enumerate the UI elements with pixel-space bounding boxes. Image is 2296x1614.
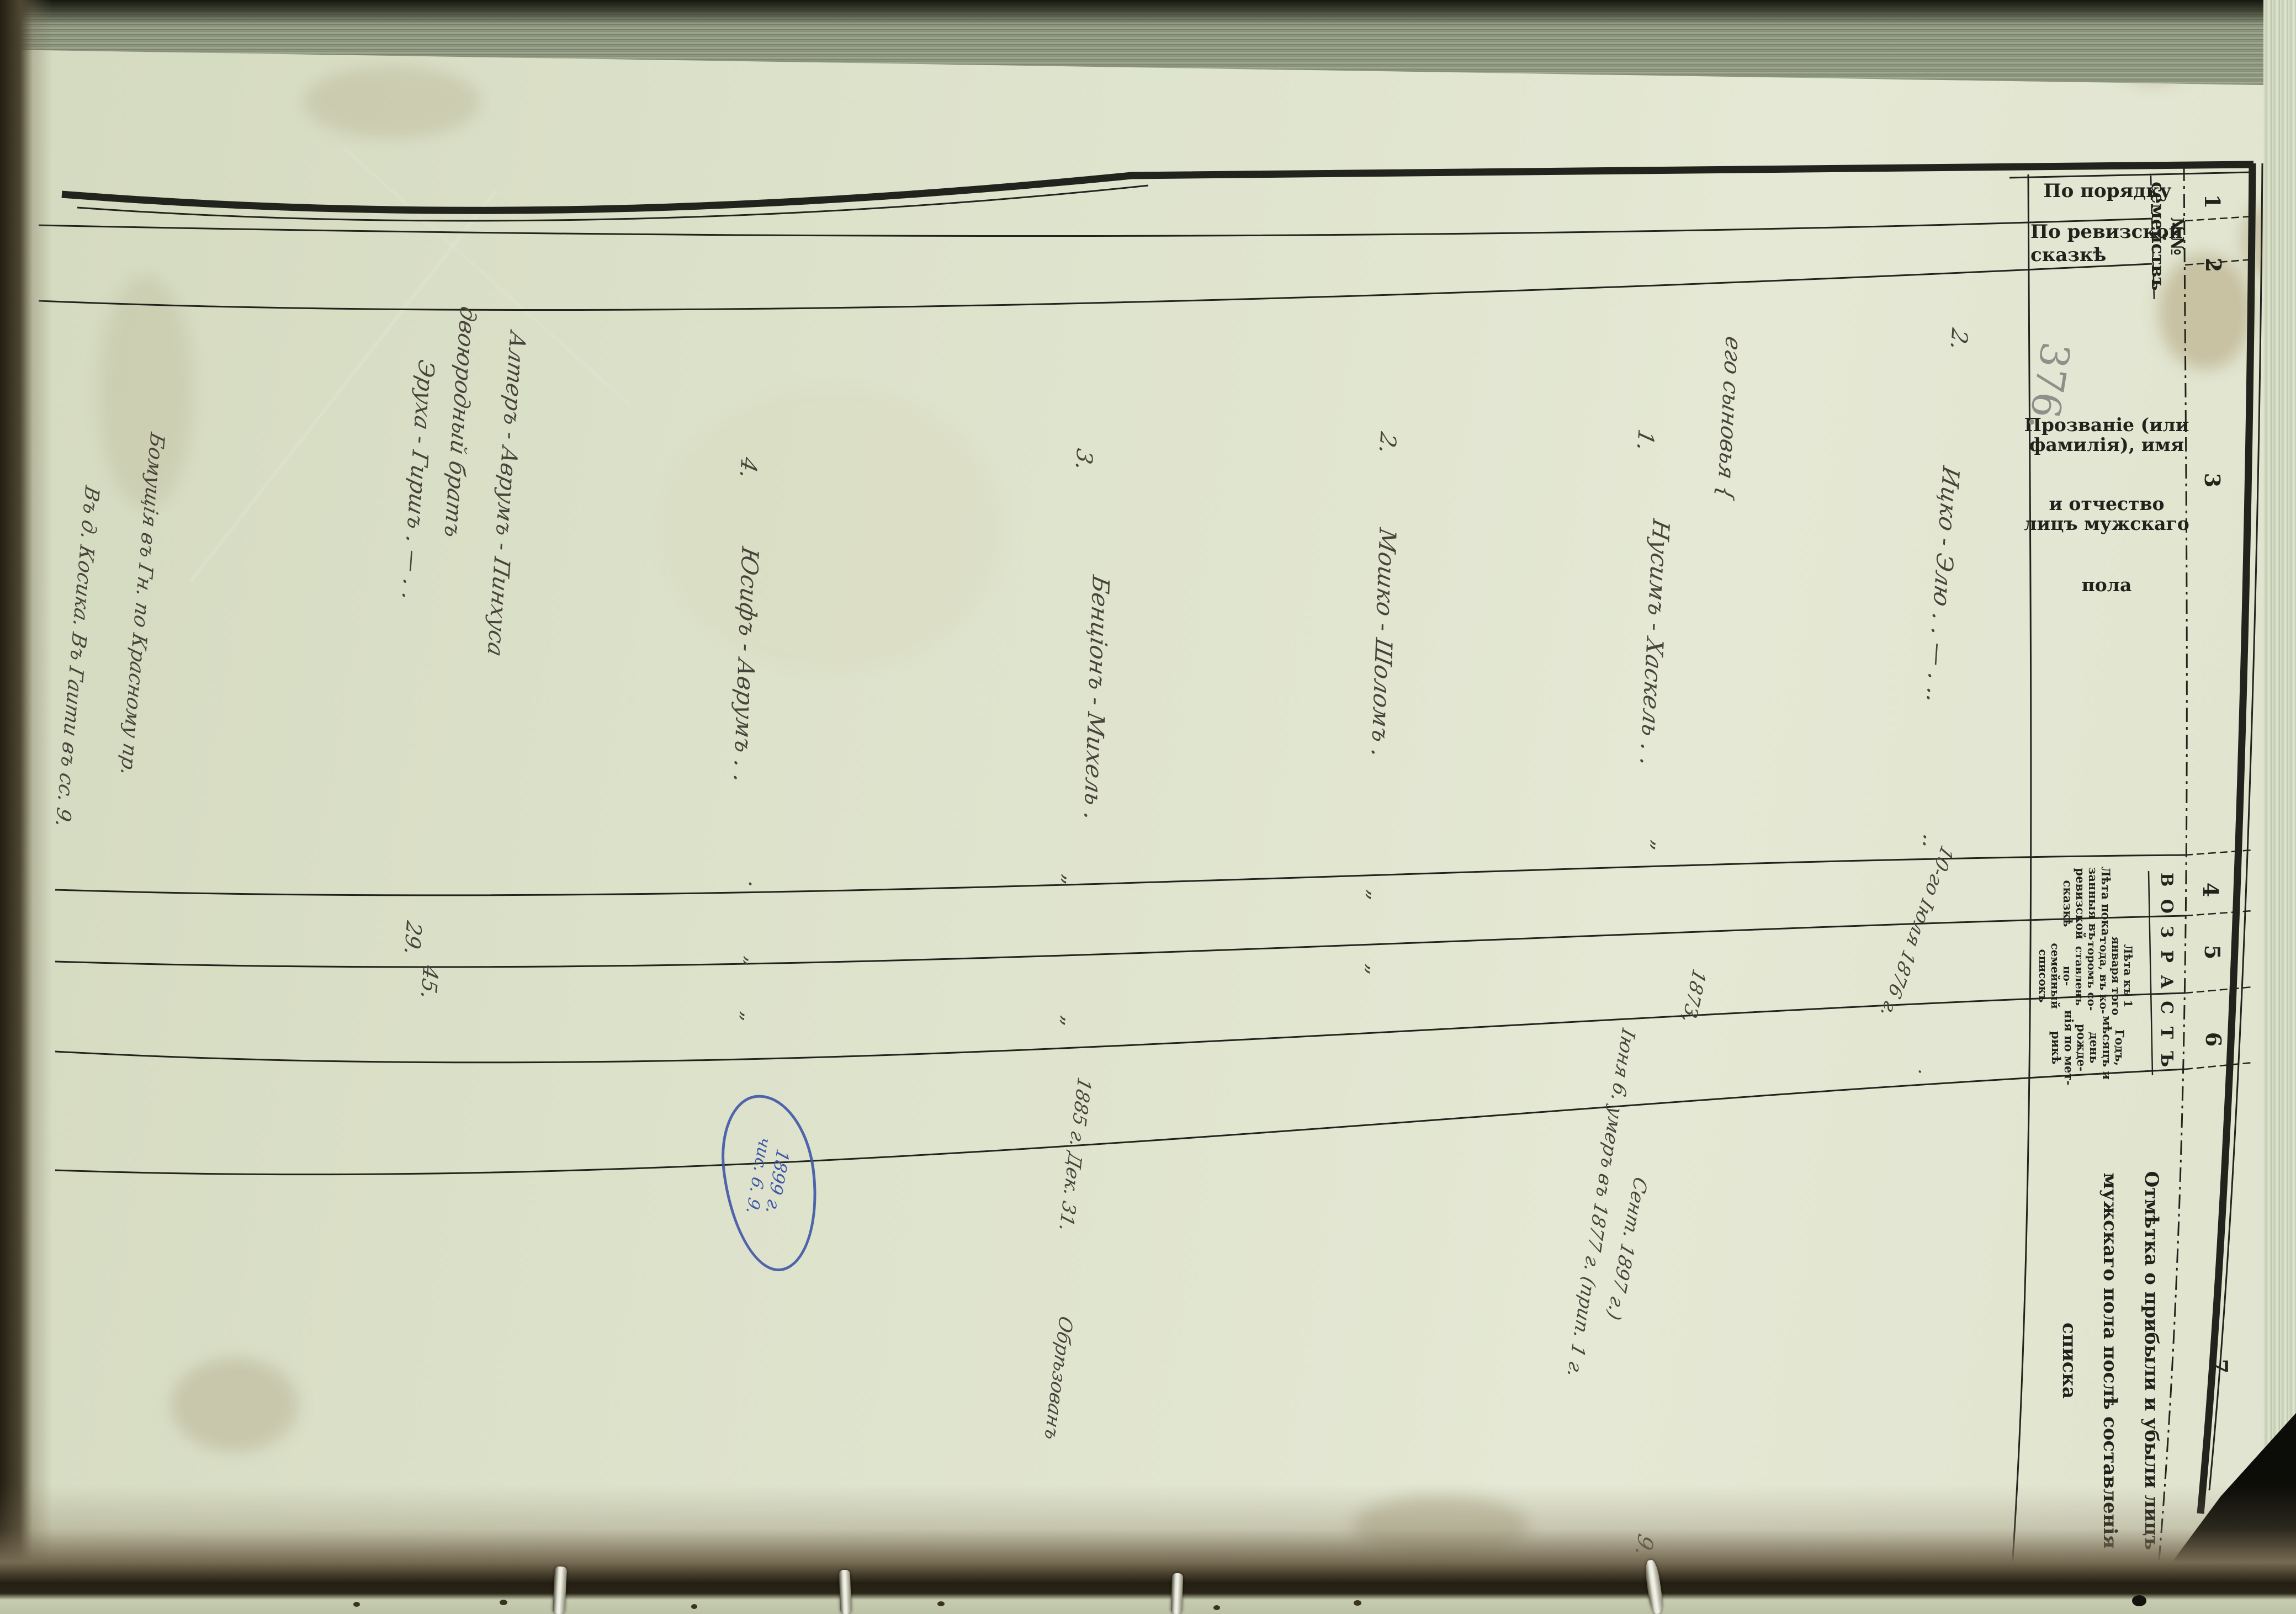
col4-line: Лѣта пока- bbox=[2099, 867, 2112, 941]
gutter-speck bbox=[1354, 1600, 1361, 1606]
col7-header: Отмѣтка о прибыли и убыли лицъ мужскаго … bbox=[2044, 1184, 2176, 1537]
col4-line: занныя въ bbox=[2087, 867, 2099, 940]
column-number-6: 6 bbox=[2200, 1023, 2228, 1056]
grid-lines bbox=[0, 0, 2296, 1614]
col6-header: Годъ, мѣсяцъ и день рожде- нія по мет- р… bbox=[2051, 1006, 2124, 1089]
col5-line: списокъ bbox=[2037, 949, 2049, 1003]
col7-line: списка bbox=[2048, 1323, 2090, 1399]
binding-pin bbox=[1171, 1573, 1184, 1614]
gutter-speck bbox=[353, 1602, 360, 1607]
col6-line: мѣсяцъ и bbox=[2101, 1016, 2113, 1080]
row1-dot: . bbox=[1911, 1060, 1940, 1084]
row6-ditto1: „ bbox=[738, 947, 767, 976]
group-no-line2: семействъ bbox=[2148, 182, 2167, 291]
col5-line: года, въ ко- bbox=[2098, 938, 2110, 1014]
column-number-4: 4 bbox=[2197, 873, 2225, 906]
col5-line: семейный bbox=[2049, 943, 2061, 1008]
age-group-header: В О З Р А С Т Ъ bbox=[2154, 869, 2180, 1074]
row6-dot: . bbox=[742, 872, 771, 896]
col3-header-line2: и отчество лицъ мужскаго bbox=[2024, 494, 2189, 534]
col6-line: рикѣ bbox=[2050, 1031, 2062, 1064]
binding-hole bbox=[2132, 1595, 2146, 1606]
gutter-speck bbox=[1213, 1605, 1220, 1610]
col5-line: торомъ со- bbox=[2086, 941, 2098, 1011]
group-no-line1: №№ bbox=[2167, 217, 2187, 256]
col5-line: Лѣта къ 1 bbox=[2122, 944, 2134, 1008]
col3-header-line3: пола bbox=[2024, 575, 2189, 595]
row4-ditto2: „ bbox=[1360, 955, 1389, 984]
col5-line: ставленъ по- bbox=[2061, 935, 2086, 1017]
gutter-speck bbox=[500, 1600, 507, 1605]
col4-line: ревизской bbox=[2074, 868, 2087, 939]
page-right-edge bbox=[2263, 0, 2296, 1614]
page-left-edge bbox=[0, 0, 52, 1614]
column-number-7: 7 bbox=[2207, 1350, 2234, 1383]
column-number-5: 5 bbox=[2199, 936, 2226, 969]
col4-line: сказкѣ bbox=[2061, 880, 2074, 927]
row5-ditto1: „ bbox=[1056, 865, 1085, 894]
column-number-3: 3 bbox=[2199, 464, 2226, 497]
row3-ditto: „ bbox=[1645, 831, 1674, 860]
col6-line: нія по мет- bbox=[2062, 1010, 2075, 1085]
gutter-speck bbox=[937, 1601, 945, 1606]
col5-header: Лѣта къ 1 января того года, въ ко- тором… bbox=[2039, 935, 2133, 1017]
column-number-2: 2 bbox=[2200, 248, 2228, 282]
binding-pin bbox=[839, 1570, 852, 1614]
col5-line: января того bbox=[2110, 936, 2122, 1015]
column-number-1: 1 bbox=[2199, 185, 2226, 218]
binding-pin bbox=[553, 1566, 567, 1614]
col6-line: Годъ, bbox=[2113, 1029, 2126, 1066]
row7-age-current: 45. bbox=[414, 954, 445, 1011]
gutter-speck bbox=[691, 1604, 697, 1609]
row4-ditto1: „ bbox=[1361, 880, 1390, 910]
col4-header: Лѣта пока- занныя въ ревизской сказкѣ bbox=[2055, 862, 2118, 945]
scanned-ledger-photo: По порядку По ревизской сказкѣ Прозваніе… bbox=[0, 0, 2296, 1614]
col6-line: день рожде- bbox=[2075, 1006, 2101, 1089]
binding-gutter bbox=[0, 1485, 2296, 1614]
row6-ditto2: „ bbox=[734, 1002, 763, 1031]
group-no-header: №№ семействъ bbox=[2144, 170, 2191, 302]
